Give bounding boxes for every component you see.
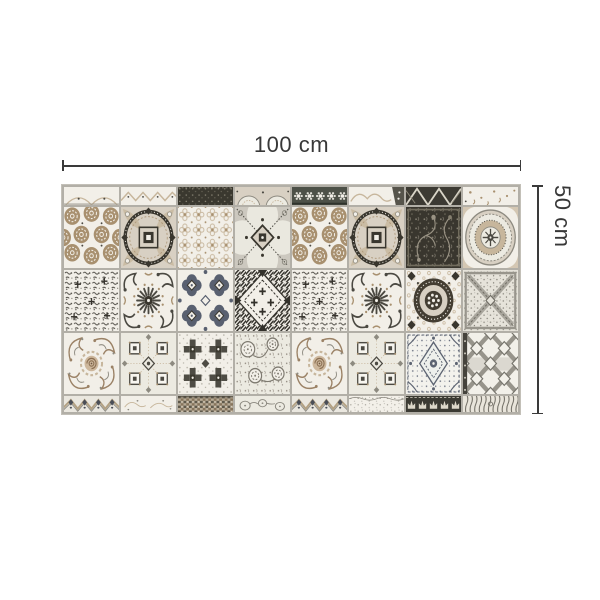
width-dimension-line — [62, 165, 521, 167]
strip-border-chevron-fleur — [292, 396, 347, 412]
strip-border-chevron-fleur — [64, 396, 119, 412]
strip-border-mosaic — [178, 396, 233, 412]
tile-compass-circle — [235, 207, 290, 268]
tile-rosette-dots — [64, 207, 119, 268]
strip-edge-plate — [235, 187, 290, 205]
strip-edge-dark-speckle — [178, 187, 233, 205]
tile-trellis — [463, 333, 518, 394]
product-dimension-diagram: 100 cm — [0, 0, 600, 600]
strip-border-woodgrain — [463, 396, 518, 412]
strip-border-crowns — [406, 396, 461, 412]
tile-floral-speckle — [235, 333, 290, 394]
tile-dark-cross — [178, 333, 233, 394]
strip-edge-flower-band — [292, 187, 347, 205]
height-top-tick — [532, 185, 543, 187]
tile-rococo-scroll — [64, 333, 119, 394]
tile-lace-diamond — [406, 333, 461, 394]
strip-border-floral-sketch — [121, 396, 176, 412]
tile-quatrefoil-grid — [178, 270, 233, 331]
strip-edge-scrolls — [349, 187, 404, 205]
width-left-tick — [62, 160, 64, 171]
tile-rosette-dots — [292, 207, 347, 268]
tile-lace-floral — [178, 207, 233, 268]
tile-speckle-lace — [64, 270, 119, 331]
tile-medallion-plate — [463, 207, 518, 268]
height-dimension-line — [537, 185, 539, 414]
tile-diamond-grid — [121, 333, 176, 394]
tile-curved-frame — [349, 207, 404, 268]
tile-dark-damask — [406, 207, 461, 268]
tile-cross-hatch-x — [463, 270, 518, 331]
tile-rococo-scroll — [292, 333, 347, 394]
tile-sunburst — [349, 270, 404, 331]
tile-sunburst — [121, 270, 176, 331]
tile-ring-medallion — [406, 270, 461, 331]
strip-edge-marks — [463, 187, 518, 205]
tile-diamond-grid — [349, 333, 404, 394]
tile-mat-photo — [62, 185, 520, 414]
tile-speckle-lace — [292, 270, 347, 331]
width-right-tick — [520, 160, 522, 171]
strip-edge-arcs — [64, 187, 119, 205]
width-dimension-label: 100 cm — [62, 132, 521, 158]
strip-border-toile — [235, 396, 290, 412]
strip-edge-chevron — [121, 187, 176, 205]
strip-edge-dark-lattice — [406, 187, 461, 205]
height-bottom-tick — [532, 413, 543, 415]
height-dimension-label: 50 cm — [549, 185, 575, 414]
strip-border-speckle — [349, 396, 404, 412]
tile-curved-frame — [121, 207, 176, 268]
tile-diagonal-geo — [235, 270, 290, 331]
